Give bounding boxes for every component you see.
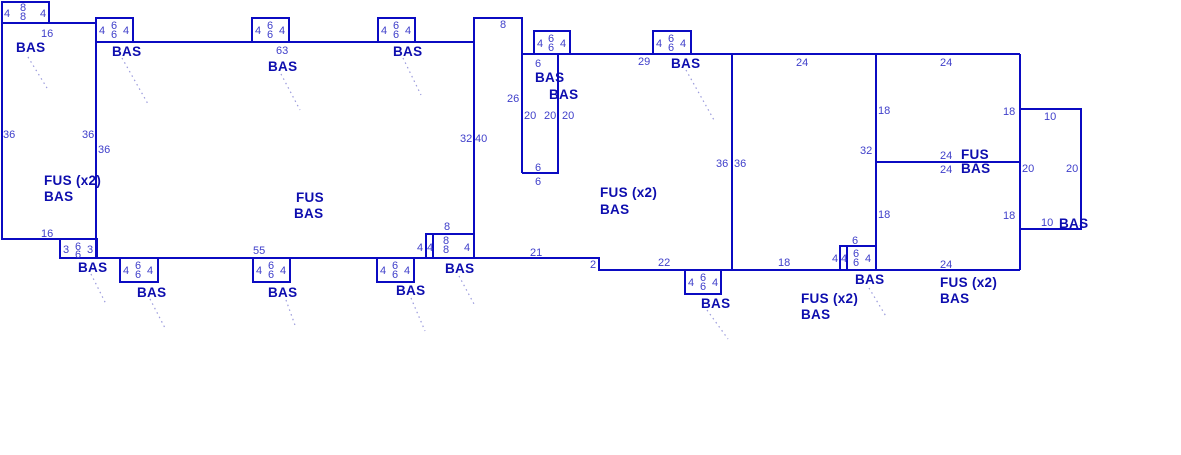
dim-label: 16 <box>41 28 53 40</box>
label-leader-line <box>281 74 300 110</box>
label-leader-line <box>403 58 421 95</box>
area-label: BAS <box>549 87 578 102</box>
dim-label: 32 <box>460 133 472 145</box>
dim-label: 6 <box>853 257 859 269</box>
dim-label: 10 <box>1044 111 1056 123</box>
dim-label: 4 <box>123 25 129 37</box>
area-label: BAS <box>940 291 969 306</box>
dim-label: 20 <box>1066 163 1078 175</box>
label-leader-line <box>286 300 296 328</box>
dim-label: 3 <box>87 244 93 256</box>
dim-label: 20 <box>524 110 536 122</box>
dim-label: 8 <box>500 19 506 31</box>
dim-label: 24 <box>940 259 952 271</box>
label-leader-line <box>686 70 714 120</box>
dim-label: 24 <box>796 57 808 69</box>
area-label: BAS <box>701 296 730 311</box>
dim-label: 40 <box>475 133 487 145</box>
dim-label: 4 <box>832 253 838 265</box>
dim-label: 4 <box>656 38 662 50</box>
dim-label: 8 <box>444 221 450 233</box>
dim-label: 6 <box>268 269 274 281</box>
dim-label: 18 <box>1003 106 1015 118</box>
label-leader-line <box>411 298 425 331</box>
dim-label: 20 <box>544 110 556 122</box>
dim-label: 6 <box>852 235 858 247</box>
label-leader-line <box>122 58 148 104</box>
area-label: BAS <box>961 161 990 176</box>
area-label: BAS <box>535 70 564 85</box>
dim-label: 4 <box>380 265 386 277</box>
dim-label: 24 <box>940 57 952 69</box>
dim-label: 2 <box>590 259 596 271</box>
area-label: BAS <box>445 261 474 276</box>
label-leader-line <box>28 57 47 88</box>
dim-label: 18 <box>878 105 890 117</box>
dim-label: 6 <box>535 58 541 70</box>
dim-label: 4 <box>40 8 46 20</box>
dim-label: 6 <box>393 29 399 41</box>
area-label: BAS <box>268 285 297 300</box>
area-label: BAS <box>1059 216 1088 231</box>
dim-label: 29 <box>638 56 650 68</box>
area-label: BAS <box>137 285 166 300</box>
area-label: FUS (x2) <box>801 291 858 306</box>
area-label: FUS <box>296 190 324 205</box>
area-label: FUS (x2) <box>940 275 997 290</box>
dim-label: 4 <box>404 265 410 277</box>
label-leader-line <box>707 310 728 339</box>
floorplan-sketch-canvas: 4884163636361636634664466463466446644664… <box>0 0 1181 455</box>
dim-label: 21 <box>530 247 542 259</box>
dim-label: 6 <box>111 29 117 41</box>
area-label: BAS <box>801 307 830 322</box>
dim-label: 8 <box>443 244 449 256</box>
dim-label: 63 <box>276 45 288 57</box>
area-label: BAS <box>112 44 141 59</box>
dim-label: 4 <box>560 38 566 50</box>
dim-label: 6 <box>392 269 398 281</box>
label-leader-line <box>91 274 106 304</box>
label-leader-line <box>459 276 474 304</box>
area-label: FUS <box>961 147 989 162</box>
dim-label: 4 <box>537 38 543 50</box>
label-leader-line <box>150 299 165 328</box>
dim-label: 20 <box>562 110 574 122</box>
dim-label: 18 <box>1003 210 1015 222</box>
dim-label: 18 <box>878 209 890 221</box>
dim-label: 6 <box>535 176 541 188</box>
dimension-labels: 4884163636361636634664466463466446644664… <box>3 2 1078 293</box>
area-label: BAS <box>393 44 422 59</box>
dim-label: 4 <box>841 253 847 265</box>
dim-label: 24 <box>940 150 952 162</box>
area-label: FUS (x2) <box>44 173 101 188</box>
dim-label: 4 <box>255 25 261 37</box>
area-label: BAS <box>600 202 629 217</box>
dim-label: 4 <box>147 265 153 277</box>
dim-label: 4 <box>4 8 10 20</box>
dim-label: 20 <box>1022 163 1034 175</box>
dim-label: 22 <box>658 257 670 269</box>
area-label: BAS <box>16 40 45 55</box>
dim-label: 4 <box>99 25 105 37</box>
dim-label: 4 <box>427 242 433 254</box>
dim-label: 3 <box>63 244 69 256</box>
dim-label: 8 <box>20 11 26 23</box>
dim-label: 4 <box>680 38 686 50</box>
dim-label: 36 <box>716 158 728 170</box>
dim-label: 4 <box>381 25 387 37</box>
dim-label: 4 <box>405 25 411 37</box>
dim-label: 4 <box>279 25 285 37</box>
dim-label: 36 <box>82 129 94 141</box>
dim-label: 4 <box>417 242 423 254</box>
dim-label: 4 <box>712 277 718 289</box>
dim-label: 4 <box>280 265 286 277</box>
dim-label: 4 <box>865 253 871 265</box>
dim-label: 4 <box>688 277 694 289</box>
dim-label: 24 <box>940 164 952 176</box>
dim-label: 6 <box>548 42 554 54</box>
floorplan-sketch: 4884163636361636634664466463466446644664… <box>0 0 1181 455</box>
dim-label: 4 <box>256 265 262 277</box>
dim-label: 36 <box>734 158 746 170</box>
dim-label: 6 <box>668 42 674 54</box>
dim-label: 16 <box>41 228 53 240</box>
dim-label: 6 <box>700 281 706 293</box>
area-label: FUS (x2) <box>600 185 657 200</box>
area-label: BAS <box>396 283 425 298</box>
area-label: BAS <box>44 189 73 204</box>
dim-label: 36 <box>3 129 15 141</box>
area-label: BAS <box>294 206 323 221</box>
area-label: BAS <box>855 272 884 287</box>
dim-label: 32 <box>860 145 872 157</box>
dim-label: 18 <box>778 257 790 269</box>
dim-label: 6 <box>267 29 273 41</box>
area-label: BAS <box>78 260 107 275</box>
dim-label: 4 <box>123 265 129 277</box>
dim-label: 6 <box>535 162 541 174</box>
area-type-labels: BASBASBASBASBASBASBASFUS (x2)BASFUSBASFU… <box>16 40 1088 322</box>
dim-label: 55 <box>253 245 265 257</box>
dim-label: 6 <box>135 269 141 281</box>
area-label: BAS <box>268 59 297 74</box>
label-leader-line <box>869 288 887 318</box>
dim-label: 4 <box>464 242 470 254</box>
dim-label: 10 <box>1041 217 1053 229</box>
area-label: BAS <box>671 56 700 71</box>
dim-label: 26 <box>507 93 519 105</box>
dim-label: 36 <box>98 144 110 156</box>
